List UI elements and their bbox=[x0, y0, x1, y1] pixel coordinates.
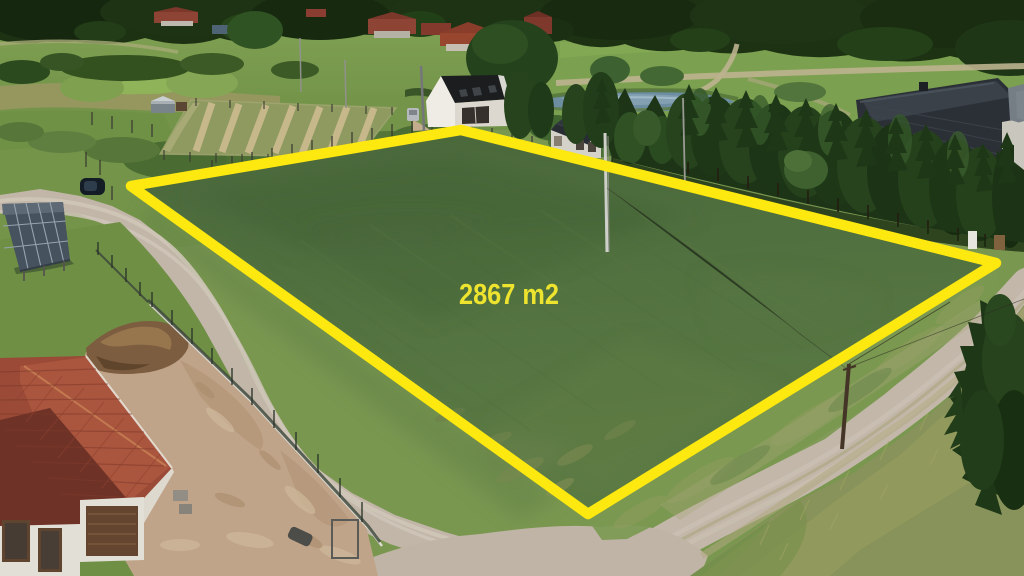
svg-text:2867 m2: 2867 m2 bbox=[459, 279, 559, 311]
